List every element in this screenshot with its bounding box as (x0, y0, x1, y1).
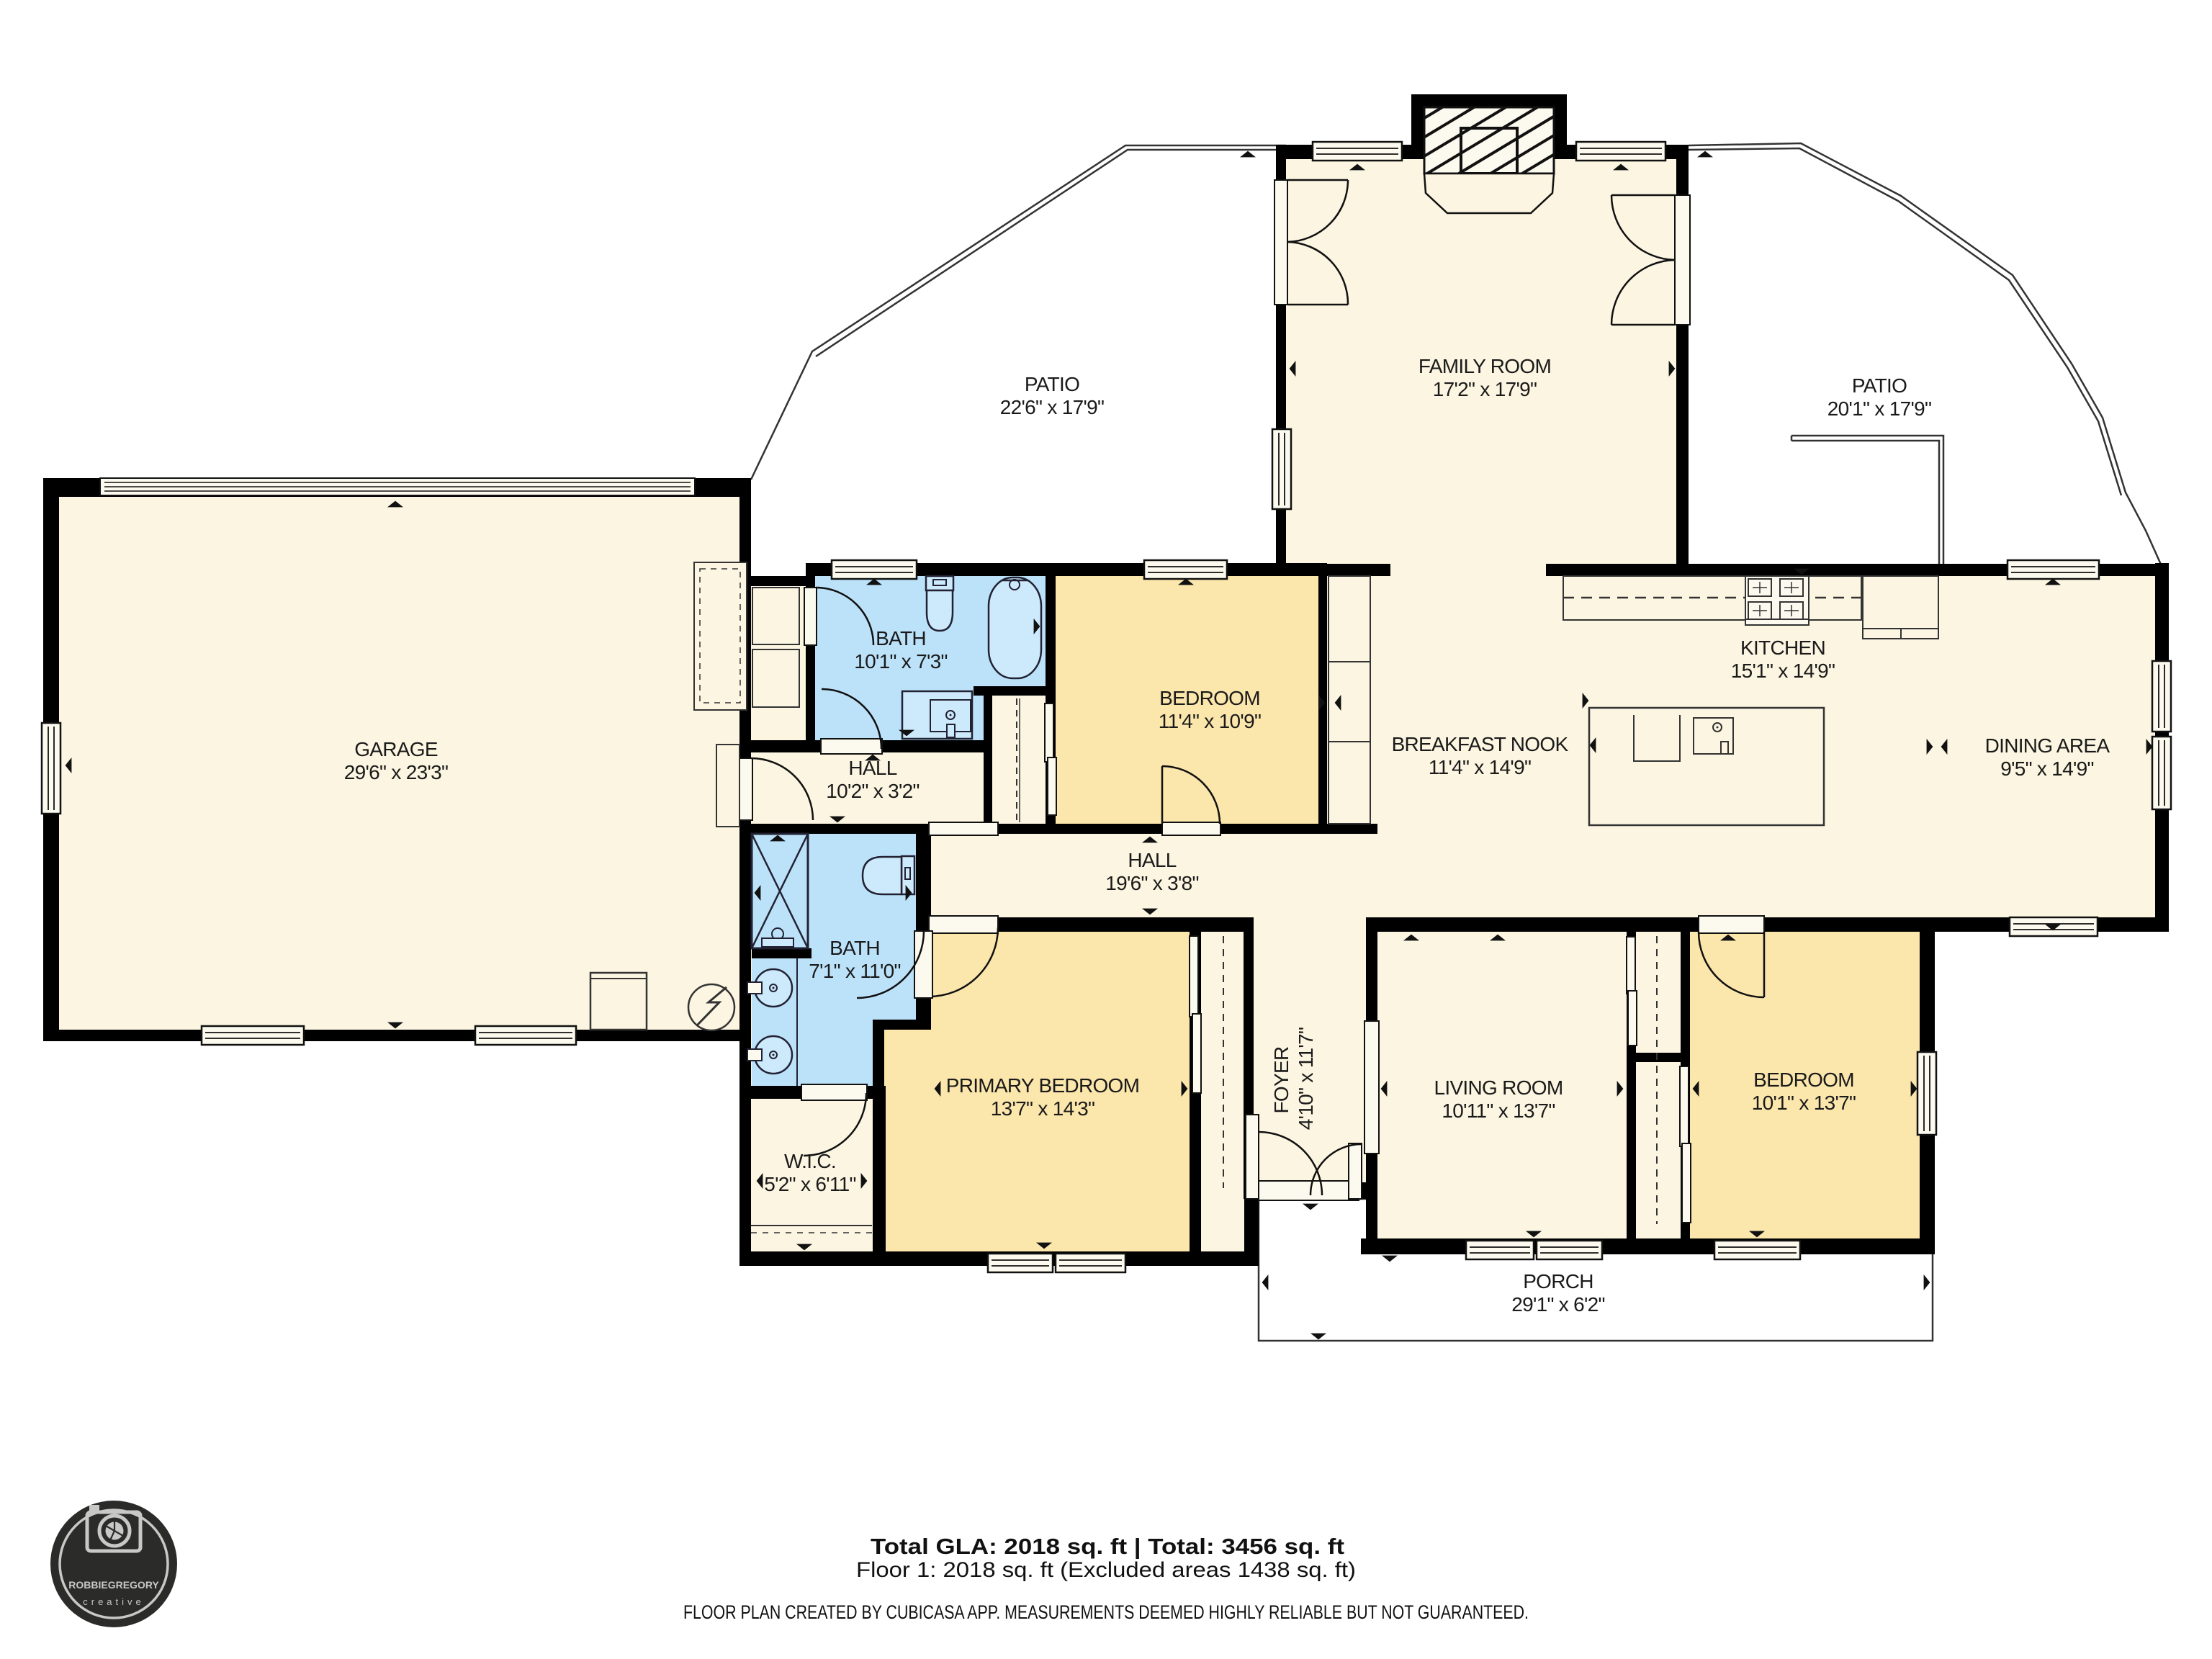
svg-text:15'1" x 14'9": 15'1" x 14'9" (1731, 660, 1835, 682)
svg-text:11'4" x 14'9": 11'4" x 14'9" (1429, 756, 1531, 778)
svg-text:PATIO: PATIO (1025, 373, 1079, 395)
svg-text:Floor 1: 2018 sq. ft (Excluded: Floor 1: 2018 sq. ft (Excluded areas 143… (856, 1558, 1356, 1582)
svg-text:DINING AREA: DINING AREA (1985, 734, 2110, 757)
svg-text:BATH: BATH (829, 937, 880, 959)
svg-text:PORCH: PORCH (1523, 1270, 1593, 1292)
svg-text:creative: creative (83, 1596, 145, 1607)
svg-text:HALL: HALL (1128, 849, 1176, 871)
svg-text:9'5" x 14'9": 9'5" x 14'9" (2000, 757, 2094, 780)
svg-text:BREAKFAST NOOK: BREAKFAST NOOK (1392, 733, 1569, 755)
svg-text:19'6" x 3'8": 19'6" x 3'8" (1105, 872, 1199, 894)
svg-text:17'2" x 17'9": 17'2" x 17'9" (1433, 378, 1537, 400)
svg-text:BEDROOM: BEDROOM (1753, 1069, 1854, 1091)
svg-text:Total GLA: 2018 sq. ft | Total: Total GLA: 2018 sq. ft | Total: 3456 sq.… (871, 1534, 1344, 1559)
svg-text:10'1" x 13'7": 10'1" x 13'7" (1752, 1092, 1856, 1114)
svg-text:5'2" x 6'11": 5'2" x 6'11" (764, 1173, 856, 1195)
svg-text:LIVING ROOM: LIVING ROOM (1434, 1076, 1563, 1099)
svg-text:10'2" x 3'2": 10'2" x 3'2" (826, 780, 920, 802)
svg-text:W.I.C.: W.I.C. (784, 1150, 836, 1172)
svg-text:20'1" x 17'9": 20'1" x 17'9" (1827, 397, 1931, 420)
svg-text:HALL: HALL (848, 757, 896, 779)
svg-text:29'1" x 6'2": 29'1" x 6'2" (1511, 1293, 1605, 1316)
svg-text:22'6" x 17'9": 22'6" x 17'9" (1000, 396, 1104, 418)
svg-text:BEDROOM: BEDROOM (1159, 687, 1260, 709)
svg-text:KITCHEN: KITCHEN (1740, 637, 1825, 659)
svg-text:BATH: BATH (876, 627, 926, 649)
svg-text:FOYER: FOYER (1270, 1047, 1292, 1114)
svg-text:ROBBIEGREGORY: ROBBIEGREGORY (68, 1579, 159, 1591)
svg-text:4'10" x 11'7": 4'10" x 11'7" (1295, 1028, 1317, 1130)
svg-text:10'11" x 13'7": 10'11" x 13'7" (1442, 1100, 1555, 1122)
svg-text:7'1" x 11'0": 7'1" x 11'0" (809, 960, 901, 982)
svg-text:PRIMARY BEDROOM: PRIMARY BEDROOM (946, 1074, 1140, 1097)
svg-text:FAMILY ROOM: FAMILY ROOM (1419, 355, 1551, 377)
svg-text:GARAGE: GARAGE (354, 738, 438, 760)
svg-text:29'6" x 23'3": 29'6" x 23'3" (344, 761, 448, 783)
svg-text:11'4" x 10'9": 11'4" x 10'9" (1159, 710, 1261, 732)
svg-text:10'1" x 7'3": 10'1" x 7'3" (854, 650, 948, 673)
svg-text:FLOOR PLAN CREATED BY CUBICASA: FLOOR PLAN CREATED BY CUBICASA APP. MEAS… (683, 1601, 1529, 1623)
svg-text:13'7" x 14'3": 13'7" x 14'3" (991, 1097, 1094, 1120)
svg-text:PATIO: PATIO (1852, 374, 1907, 397)
